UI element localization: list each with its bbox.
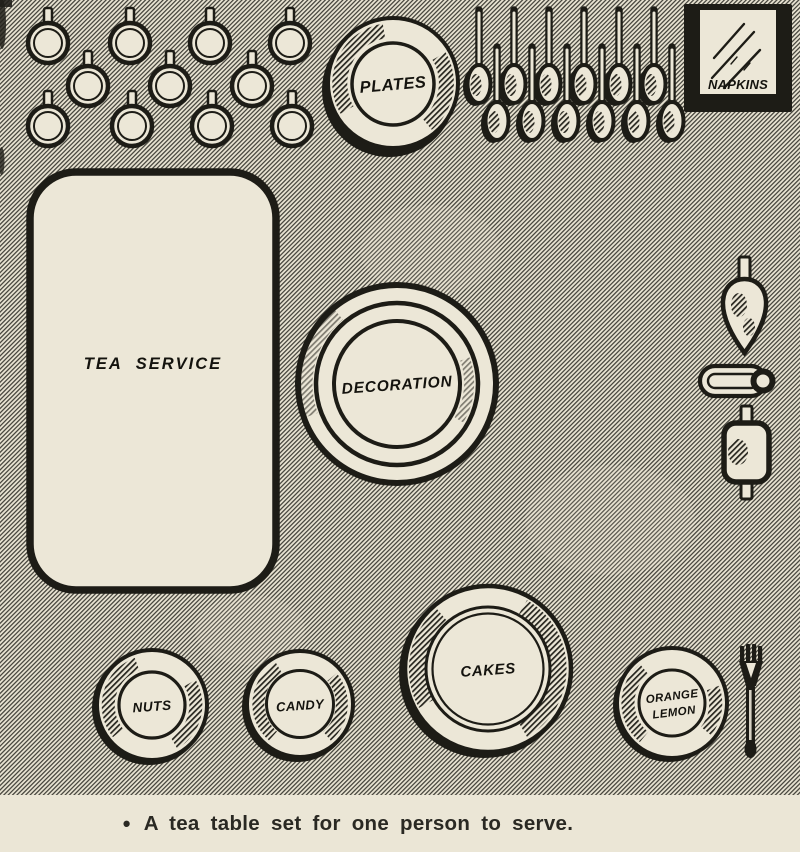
sugar-tongs bbox=[700, 366, 773, 396]
napkins-square: NAPKINS bbox=[684, 4, 792, 112]
candy-dish: CANDY bbox=[242, 651, 353, 762]
decoration-centerpiece: DECORATION bbox=[298, 285, 496, 483]
scanned-page: PLATES bbox=[0, 0, 800, 852]
tea-service-tray: TEA SERVICE bbox=[30, 172, 276, 590]
figure-caption: • A tea table set for one person to serv… bbox=[123, 812, 573, 836]
cakes-plate: CAKES bbox=[399, 586, 571, 758]
tea-table-diagram: PLATES bbox=[0, 0, 800, 795]
caption-strip: • A tea table set for one person to serv… bbox=[0, 795, 800, 852]
nuts-dish: NUTS bbox=[92, 650, 207, 765]
orange-lemon-dish: ORANGE LEMON bbox=[613, 648, 727, 762]
napkins-label: NAPKINS bbox=[708, 77, 768, 92]
caption-bullet: • bbox=[123, 813, 131, 835]
caption-text: A tea table set for one person to serve. bbox=[144, 812, 573, 836]
tea-service-label: TEA SERVICE bbox=[84, 355, 222, 373]
nuts-label: NUTS bbox=[132, 698, 172, 716]
